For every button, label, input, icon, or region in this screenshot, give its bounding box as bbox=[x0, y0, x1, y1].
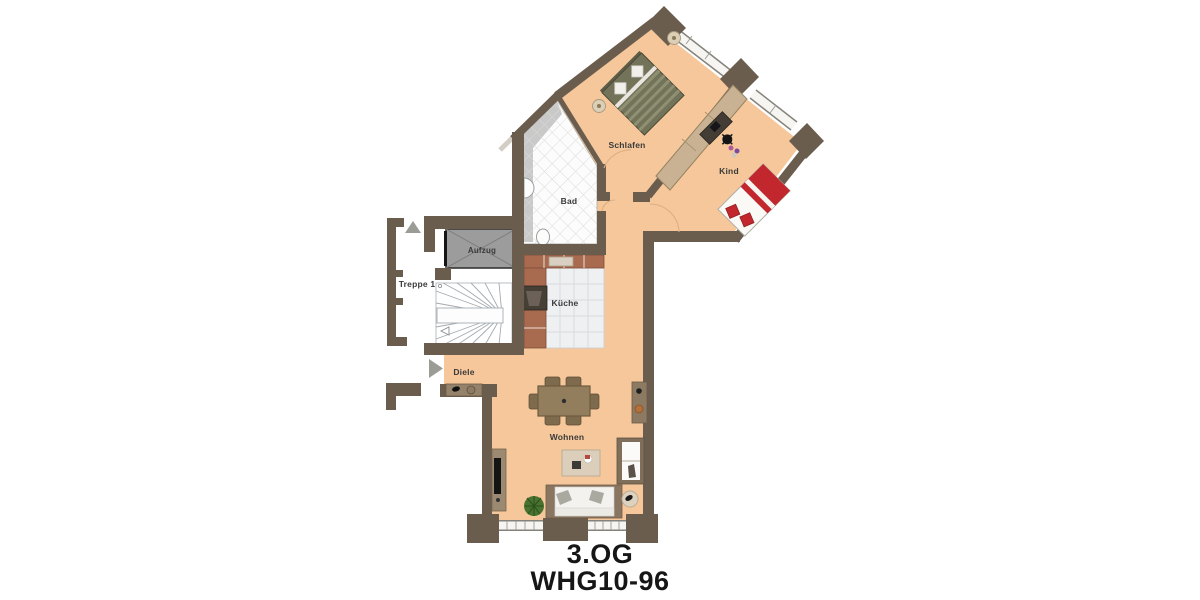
wall-stair-left bbox=[424, 216, 435, 252]
vase-icon bbox=[635, 405, 643, 413]
wall-building-left bbox=[387, 218, 396, 346]
console-table bbox=[632, 382, 647, 423]
deco-item bbox=[585, 455, 590, 459]
wall-bad-bottom bbox=[512, 244, 606, 255]
toy-clutter bbox=[735, 149, 740, 154]
kueche-tile-floor bbox=[546, 268, 604, 348]
label-treppe: Treppe 1 bbox=[399, 279, 436, 289]
nightstand-lamp bbox=[672, 36, 676, 40]
wall-west bbox=[482, 392, 492, 520]
label-schlafen: Schlafen bbox=[608, 140, 645, 150]
window-band bbox=[499, 520, 543, 531]
wall-pier bbox=[543, 518, 588, 541]
media-item bbox=[496, 498, 500, 502]
wall-stair-top bbox=[424, 216, 521, 229]
toy-clutter bbox=[729, 146, 734, 151]
floorplan-page: Schlafen Kind Bad Aufzug Treppe 1 Küche … bbox=[0, 0, 1200, 600]
kitchen-sink-icon bbox=[549, 257, 573, 266]
wall-stub bbox=[396, 298, 403, 305]
label-kueche: Küche bbox=[552, 298, 579, 308]
label-aufzug: Aufzug bbox=[468, 246, 496, 255]
label-bad: Bad bbox=[561, 196, 578, 206]
nightstand-lamp bbox=[597, 104, 601, 108]
wall-under-elevator bbox=[435, 268, 451, 280]
table-centerpiece bbox=[562, 399, 566, 403]
label-diele: Diele bbox=[453, 367, 474, 377]
book-stack bbox=[572, 461, 581, 469]
wall-entry-l bbox=[386, 383, 396, 410]
wall-east bbox=[643, 231, 654, 523]
wall-stub bbox=[387, 218, 404, 227]
wall-stair-bottom bbox=[424, 343, 521, 355]
label-kind: Kind bbox=[719, 166, 739, 176]
wall-stub bbox=[396, 270, 403, 277]
wall-stub bbox=[387, 337, 407, 346]
label-wohnen: Wohnen bbox=[550, 432, 585, 442]
wall-stub bbox=[597, 192, 610, 201]
tv-icon bbox=[494, 458, 501, 494]
elevator-door bbox=[444, 231, 447, 266]
wall-kind-bottom bbox=[645, 231, 740, 242]
toy-clutter bbox=[732, 153, 737, 158]
floorplan-image: Schlafen Kind Bad Aufzug Treppe 1 Küche … bbox=[0, 0, 1200, 600]
wall-stair-right bbox=[512, 132, 524, 355]
basket-icon bbox=[467, 386, 475, 394]
sofa-back bbox=[555, 508, 614, 516]
console-item bbox=[636, 388, 642, 394]
stair-landing bbox=[437, 308, 503, 323]
sideboard bbox=[446, 384, 482, 396]
toilet-icon bbox=[537, 229, 550, 245]
caption-unit: WHG10-96 bbox=[530, 566, 669, 596]
caption-floor: 3.OG bbox=[567, 539, 634, 569]
window-band bbox=[588, 520, 626, 531]
wall-stub bbox=[633, 192, 650, 202]
